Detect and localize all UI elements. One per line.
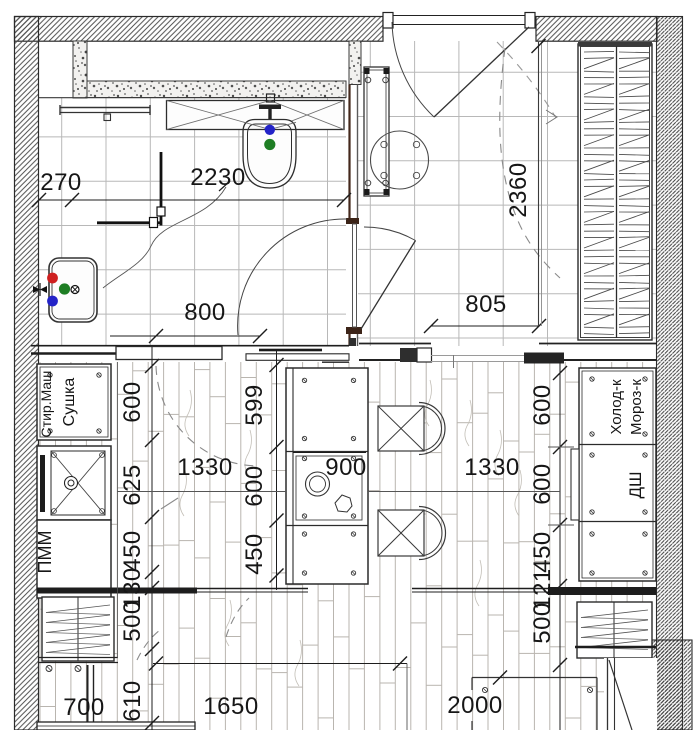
svg-text:270: 270 — [40, 169, 82, 196]
svg-text:500: 500 — [529, 602, 556, 644]
svg-text:450: 450 — [529, 531, 556, 573]
svg-text:700: 700 — [63, 694, 105, 721]
svg-text:599: 599 — [241, 384, 268, 426]
svg-text:600: 600 — [119, 381, 146, 423]
svg-text:500: 500 — [119, 600, 146, 642]
svg-text:805: 805 — [465, 291, 507, 318]
svg-text:ДШ: ДШ — [626, 471, 645, 498]
svg-text:Холод-к: Холод-к — [608, 379, 625, 435]
svg-text:900: 900 — [325, 454, 367, 481]
svg-text:800: 800 — [184, 299, 226, 326]
svg-text:1330: 1330 — [464, 454, 519, 481]
svg-text:2230: 2230 — [190, 164, 245, 191]
svg-text:ПММ: ПММ — [35, 531, 55, 574]
svg-text:2000: 2000 — [447, 692, 502, 719]
svg-text:600: 600 — [529, 384, 556, 426]
svg-text:450: 450 — [119, 530, 146, 572]
svg-text:1650: 1650 — [203, 693, 258, 720]
svg-text:Сушка: Сушка — [61, 378, 78, 427]
svg-text:Стир.Маш: Стир.Маш — [38, 371, 54, 438]
svg-text:610: 610 — [119, 680, 146, 722]
svg-text:2360: 2360 — [505, 162, 532, 217]
svg-text:450: 450 — [241, 533, 268, 575]
svg-text:1330: 1330 — [177, 454, 232, 481]
svg-text:600: 600 — [241, 465, 268, 507]
svg-text:Мороз-к: Мороз-к — [628, 379, 645, 435]
svg-text:600: 600 — [529, 463, 556, 505]
svg-text:625: 625 — [119, 464, 146, 506]
